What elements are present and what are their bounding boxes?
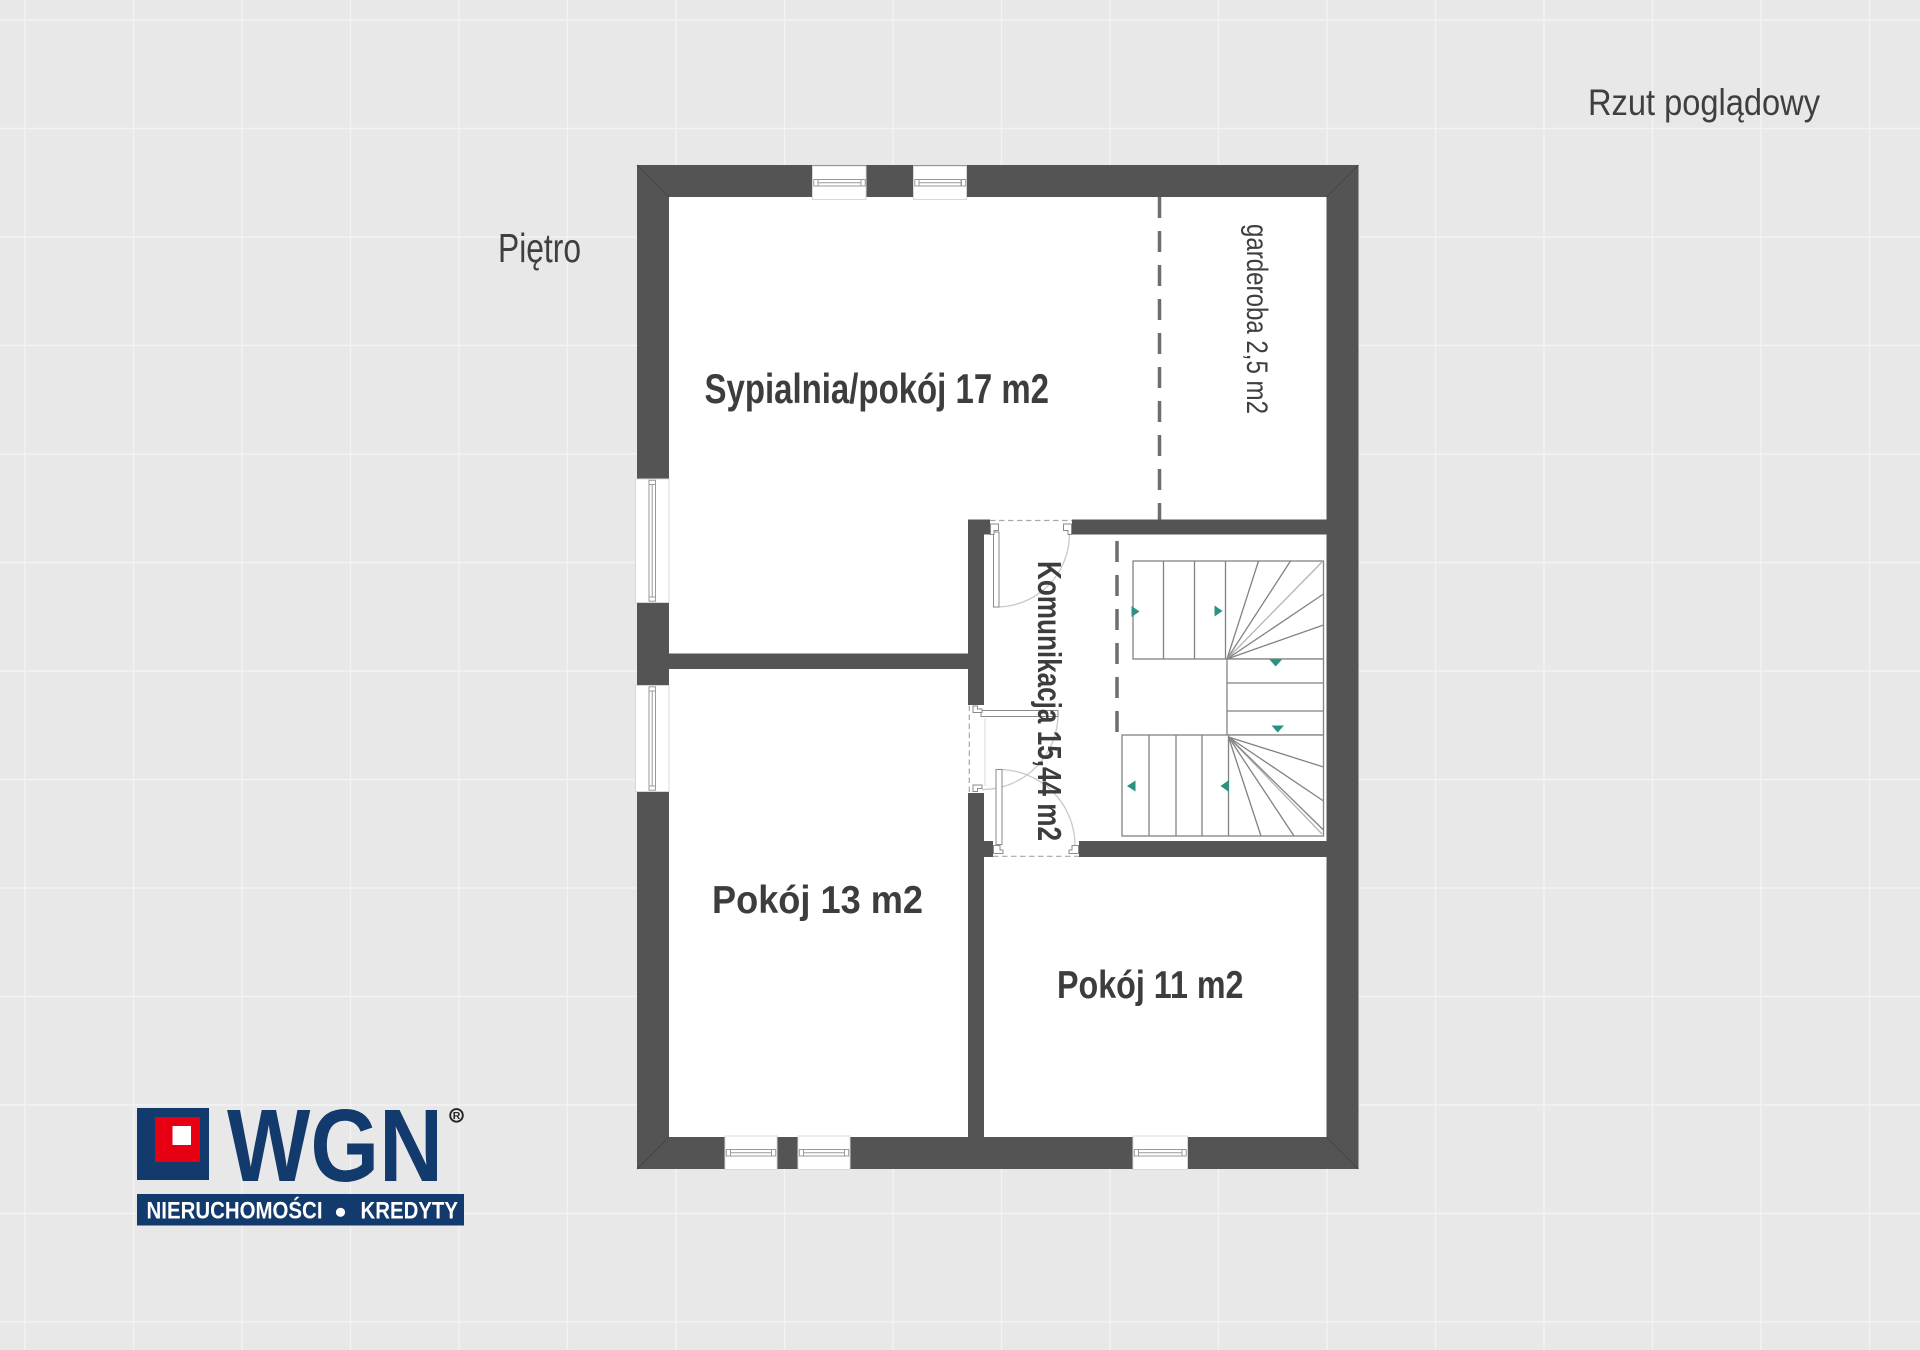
svg-text:Rzut poglądowy: Rzut poglądowy xyxy=(1588,82,1820,123)
svg-text:Sypialnia/pokój 17 m2: Sypialnia/pokój 17 m2 xyxy=(705,365,1050,412)
svg-text:WGN: WGN xyxy=(227,1088,443,1203)
svg-text:garderoba 2,5 m2: garderoba 2,5 m2 xyxy=(1240,224,1273,414)
svg-text:Pokój 11 m2: Pokój 11 m2 xyxy=(1057,964,1244,1007)
svg-text:R: R xyxy=(453,1110,461,1122)
svg-text:KREDYTY: KREDYTY xyxy=(361,1197,459,1224)
svg-text:Pokój 13 m2: Pokój 13 m2 xyxy=(712,879,923,922)
svg-text:Piętro: Piętro xyxy=(498,225,581,271)
svg-text:Komunikacja 15,44 m2: Komunikacja 15,44 m2 xyxy=(1031,561,1068,841)
svg-text:NIERUCHOMOŚCI: NIERUCHOMOŚCI xyxy=(147,1196,323,1224)
